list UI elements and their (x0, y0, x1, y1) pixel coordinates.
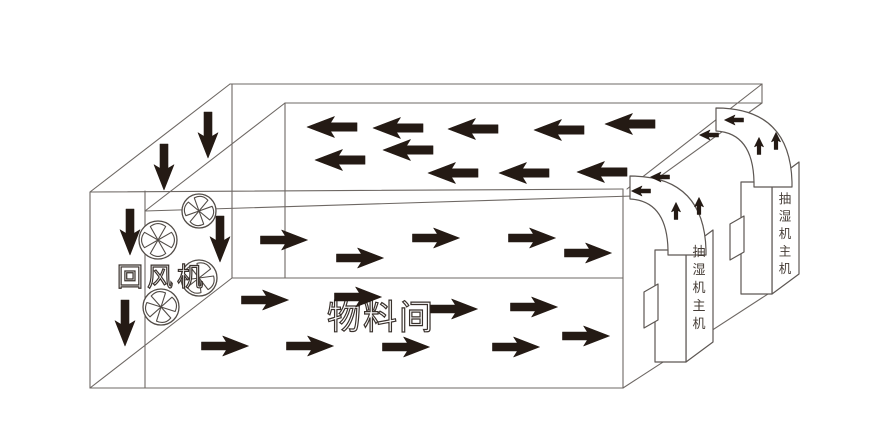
airflow-arrow-roof-left (448, 119, 498, 140)
airflow-arrow-down (154, 144, 174, 190)
airflow-arrow-roof-left (499, 163, 549, 184)
airflow-arrow-roof-left (373, 118, 423, 139)
airflow-arrow-duct-exit-left (700, 130, 719, 140)
airflow-arrow-roof-left (534, 120, 584, 141)
airflow-arrow-bottom-right (563, 326, 610, 346)
airflow-arrow-bottom-right (202, 336, 249, 356)
airflow-arrow-roof-left (605, 114, 655, 135)
airflow-arrow-down (115, 300, 135, 346)
airflow-arrow-middle-right (261, 230, 308, 250)
airflow-arrow-down (210, 216, 230, 262)
airflow-diagram: 回风机物料间抽湿机主机抽湿机主机 (0, 0, 892, 434)
airflow-arrow-roof-left (577, 162, 627, 183)
return-fan-label: 回风机 (117, 262, 207, 292)
airflow-arrow-down (198, 112, 218, 158)
dehumidifier-back-handle (730, 216, 744, 260)
airflow-arrow-middle-right (337, 248, 384, 268)
dehumidifier-front-front (655, 250, 686, 362)
airflow-arrow-down (120, 209, 140, 255)
diagram-canvas: 回风机物料间抽湿机主机抽湿机主机 (0, 0, 892, 434)
airflow-arrow-roof-left (383, 140, 433, 161)
airflow-arrow-roof-left (428, 163, 478, 184)
room-wireframe-line (145, 196, 633, 211)
airflow-arrow-middle-right (413, 228, 460, 248)
airflow-arrow-middle-right (565, 243, 612, 263)
airflow-arrow-bottom-right (287, 336, 334, 356)
dehumidifier-front-label: 抽湿机主机 (692, 244, 705, 331)
dehumidifier-back-label: 抽湿机主机 (779, 192, 792, 276)
airflow-arrow-bottom-right (242, 290, 289, 310)
room-wireframe-line (90, 189, 623, 192)
dehumidifier-back-front (741, 182, 772, 294)
airflow-arrow-bottom-right (431, 299, 478, 319)
airflow-arrow-bottom-right (511, 297, 558, 317)
dehumidifier-front-handle (644, 284, 658, 328)
material-room-label: 物料间 (327, 299, 435, 337)
airflow-arrow-bottom-right (493, 337, 540, 357)
airflow-arrow-roof-left (315, 150, 365, 171)
airflow-arrow-bottom-right (383, 337, 430, 357)
airflow-arrow-middle-right (509, 228, 556, 248)
airflow-arrow-roof-left (307, 117, 357, 138)
